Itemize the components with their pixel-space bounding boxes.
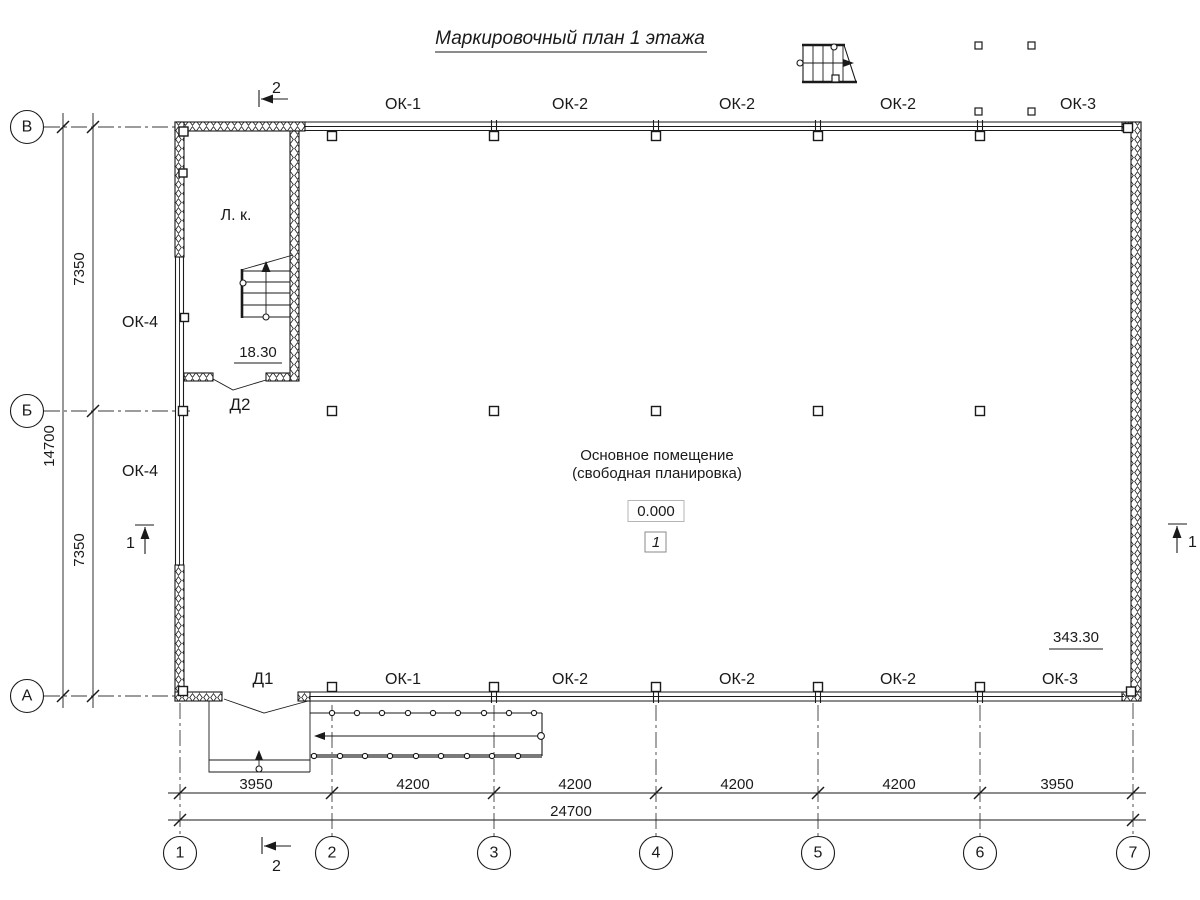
detail-column-squares	[975, 42, 1035, 115]
door-d1-leader	[224, 699, 308, 713]
floor-plan-drawing: Маркировочный план 1 этажа 3950 4200 420…	[0, 0, 1200, 900]
window-labels: ОК-1 ОК-2 ОК-2 ОК-2 ОК-3 ОК-1 ОК-2 ОК-2 …	[122, 96, 1096, 688]
dim-4200-3: 4200	[720, 776, 753, 793]
title-text: Маркировочный план 1 этажа	[435, 28, 705, 49]
axis-label-1: 1	[176, 845, 185, 862]
section-2-top-label: 2	[272, 80, 281, 97]
axis-label-5: 5	[814, 845, 823, 862]
section-1-left-label: 1	[126, 535, 135, 552]
window-piers	[492, 120, 983, 703]
section-mark-1-left: 1	[126, 525, 154, 554]
dim-total-24700: 24700	[550, 803, 592, 820]
axis-label-a: А	[22, 688, 33, 705]
plan-canvas: Маркировочный план 1 этажа 3950 4200 420…	[0, 0, 1200, 900]
axis-label-6: 6	[976, 845, 985, 862]
wall-stair-east	[290, 131, 299, 381]
window-label-west-ok4-lower: ОК-4	[122, 463, 158, 480]
axis-label-b: Б	[22, 403, 33, 420]
door-d2-label: Д2	[230, 395, 251, 414]
axis-label-3: 3	[490, 845, 499, 862]
wall-east	[1131, 122, 1141, 701]
dim-total-14700: 14700	[41, 425, 58, 467]
axis-bubbles-left: В Б А	[11, 111, 44, 713]
window-label-bottom-ok2c: ОК-2	[880, 671, 916, 688]
window-label-bottom-ok3: ОК-3	[1042, 671, 1078, 688]
wall-west-upper	[175, 122, 184, 257]
section-1-right-label: 1	[1188, 534, 1197, 551]
window-label-top-ok3: ОК-3	[1060, 96, 1096, 113]
axis-bubbles-bottom: 1 2 3 4 5 6 7	[164, 837, 1150, 870]
dim-3950-right: 3950	[1040, 776, 1073, 793]
window-label-top-ok2b: ОК-2	[719, 96, 755, 113]
window-label-west-ok4-upper: ОК-4	[122, 314, 158, 331]
window-band-bottom	[310, 692, 1124, 701]
column-markers	[179, 124, 1136, 697]
dim-7350-lower: 7350	[71, 533, 88, 566]
stair-detail-fragment	[797, 44, 857, 82]
dimension-texts: 3950 4200 4200 4200 4200 3950 24700 7350…	[41, 252, 1074, 820]
ramp	[310, 710, 544, 758]
dim-4200-2: 4200	[558, 776, 591, 793]
room-name-line2: (свободная планировка)	[572, 465, 742, 482]
window-label-top-ok2c: ОК-2	[880, 96, 916, 113]
window-label-bottom-ok2b: ОК-2	[719, 671, 755, 688]
room-name-line1: Основное помещение	[580, 447, 734, 464]
room-labels: Основное помещение (свободная планировка…	[572, 447, 742, 552]
window-label-bottom-ok1: ОК-1	[385, 671, 421, 688]
wall-stair-bottom-right	[266, 373, 290, 381]
dim-4200-1: 4200	[396, 776, 429, 793]
axis-label-4: 4	[652, 845, 661, 862]
door-d2: Д2	[213, 379, 266, 414]
window-label-top-ok2a: ОК-2	[552, 96, 588, 113]
stair-elevation-label: 18.30	[239, 344, 277, 361]
stair-flight	[240, 255, 293, 320]
room-number-value: 1	[652, 534, 660, 551]
section-1-left-arrow	[141, 527, 150, 539]
wall-stair-bottom-left	[184, 373, 213, 381]
door-d2-leader	[213, 379, 266, 390]
section-2-bottom-label: 2	[272, 858, 281, 875]
window-label-top-ok1: ОК-1	[385, 96, 421, 113]
door-d1-label: Д1	[253, 669, 274, 688]
section-2-bottom-arrow	[264, 842, 276, 851]
area-mark: 343.30	[1049, 629, 1103, 649]
axis-label-v: В	[22, 119, 33, 136]
stair-direction-arrow	[262, 261, 271, 272]
room-elevation-value: 0.000	[637, 503, 675, 520]
axis-label-7: 7	[1129, 845, 1138, 862]
door-d1: Д1	[224, 669, 308, 713]
ramp-direction-arrow	[314, 732, 325, 740]
wall-bottom-pier	[298, 692, 310, 701]
area-mark-value: 343.30	[1053, 629, 1099, 646]
drawing-title: Маркировочный план 1 этажа	[435, 28, 707, 52]
section-mark-2-top: 2	[259, 80, 288, 107]
section-1-right-arrow	[1173, 526, 1182, 538]
stairwell: Л. к. 18.30	[221, 207, 293, 363]
wall-top-left	[175, 122, 305, 131]
axis-label-2: 2	[328, 845, 337, 862]
dim-4200-4: 4200	[882, 776, 915, 793]
stair-room-label: Л. к.	[221, 207, 252, 224]
dim-7350-upper: 7350	[71, 252, 88, 285]
porch-entry-arrow	[255, 750, 263, 760]
window-band-top	[304, 122, 1124, 131]
section-mark-1-right: 1	[1168, 524, 1197, 553]
dim-3950-left: 3950	[239, 776, 272, 793]
window-label-bottom-ok2a: ОК-2	[552, 671, 588, 688]
section-mark-2-bottom: 2	[262, 837, 291, 875]
wall-west-lower	[175, 565, 184, 701]
